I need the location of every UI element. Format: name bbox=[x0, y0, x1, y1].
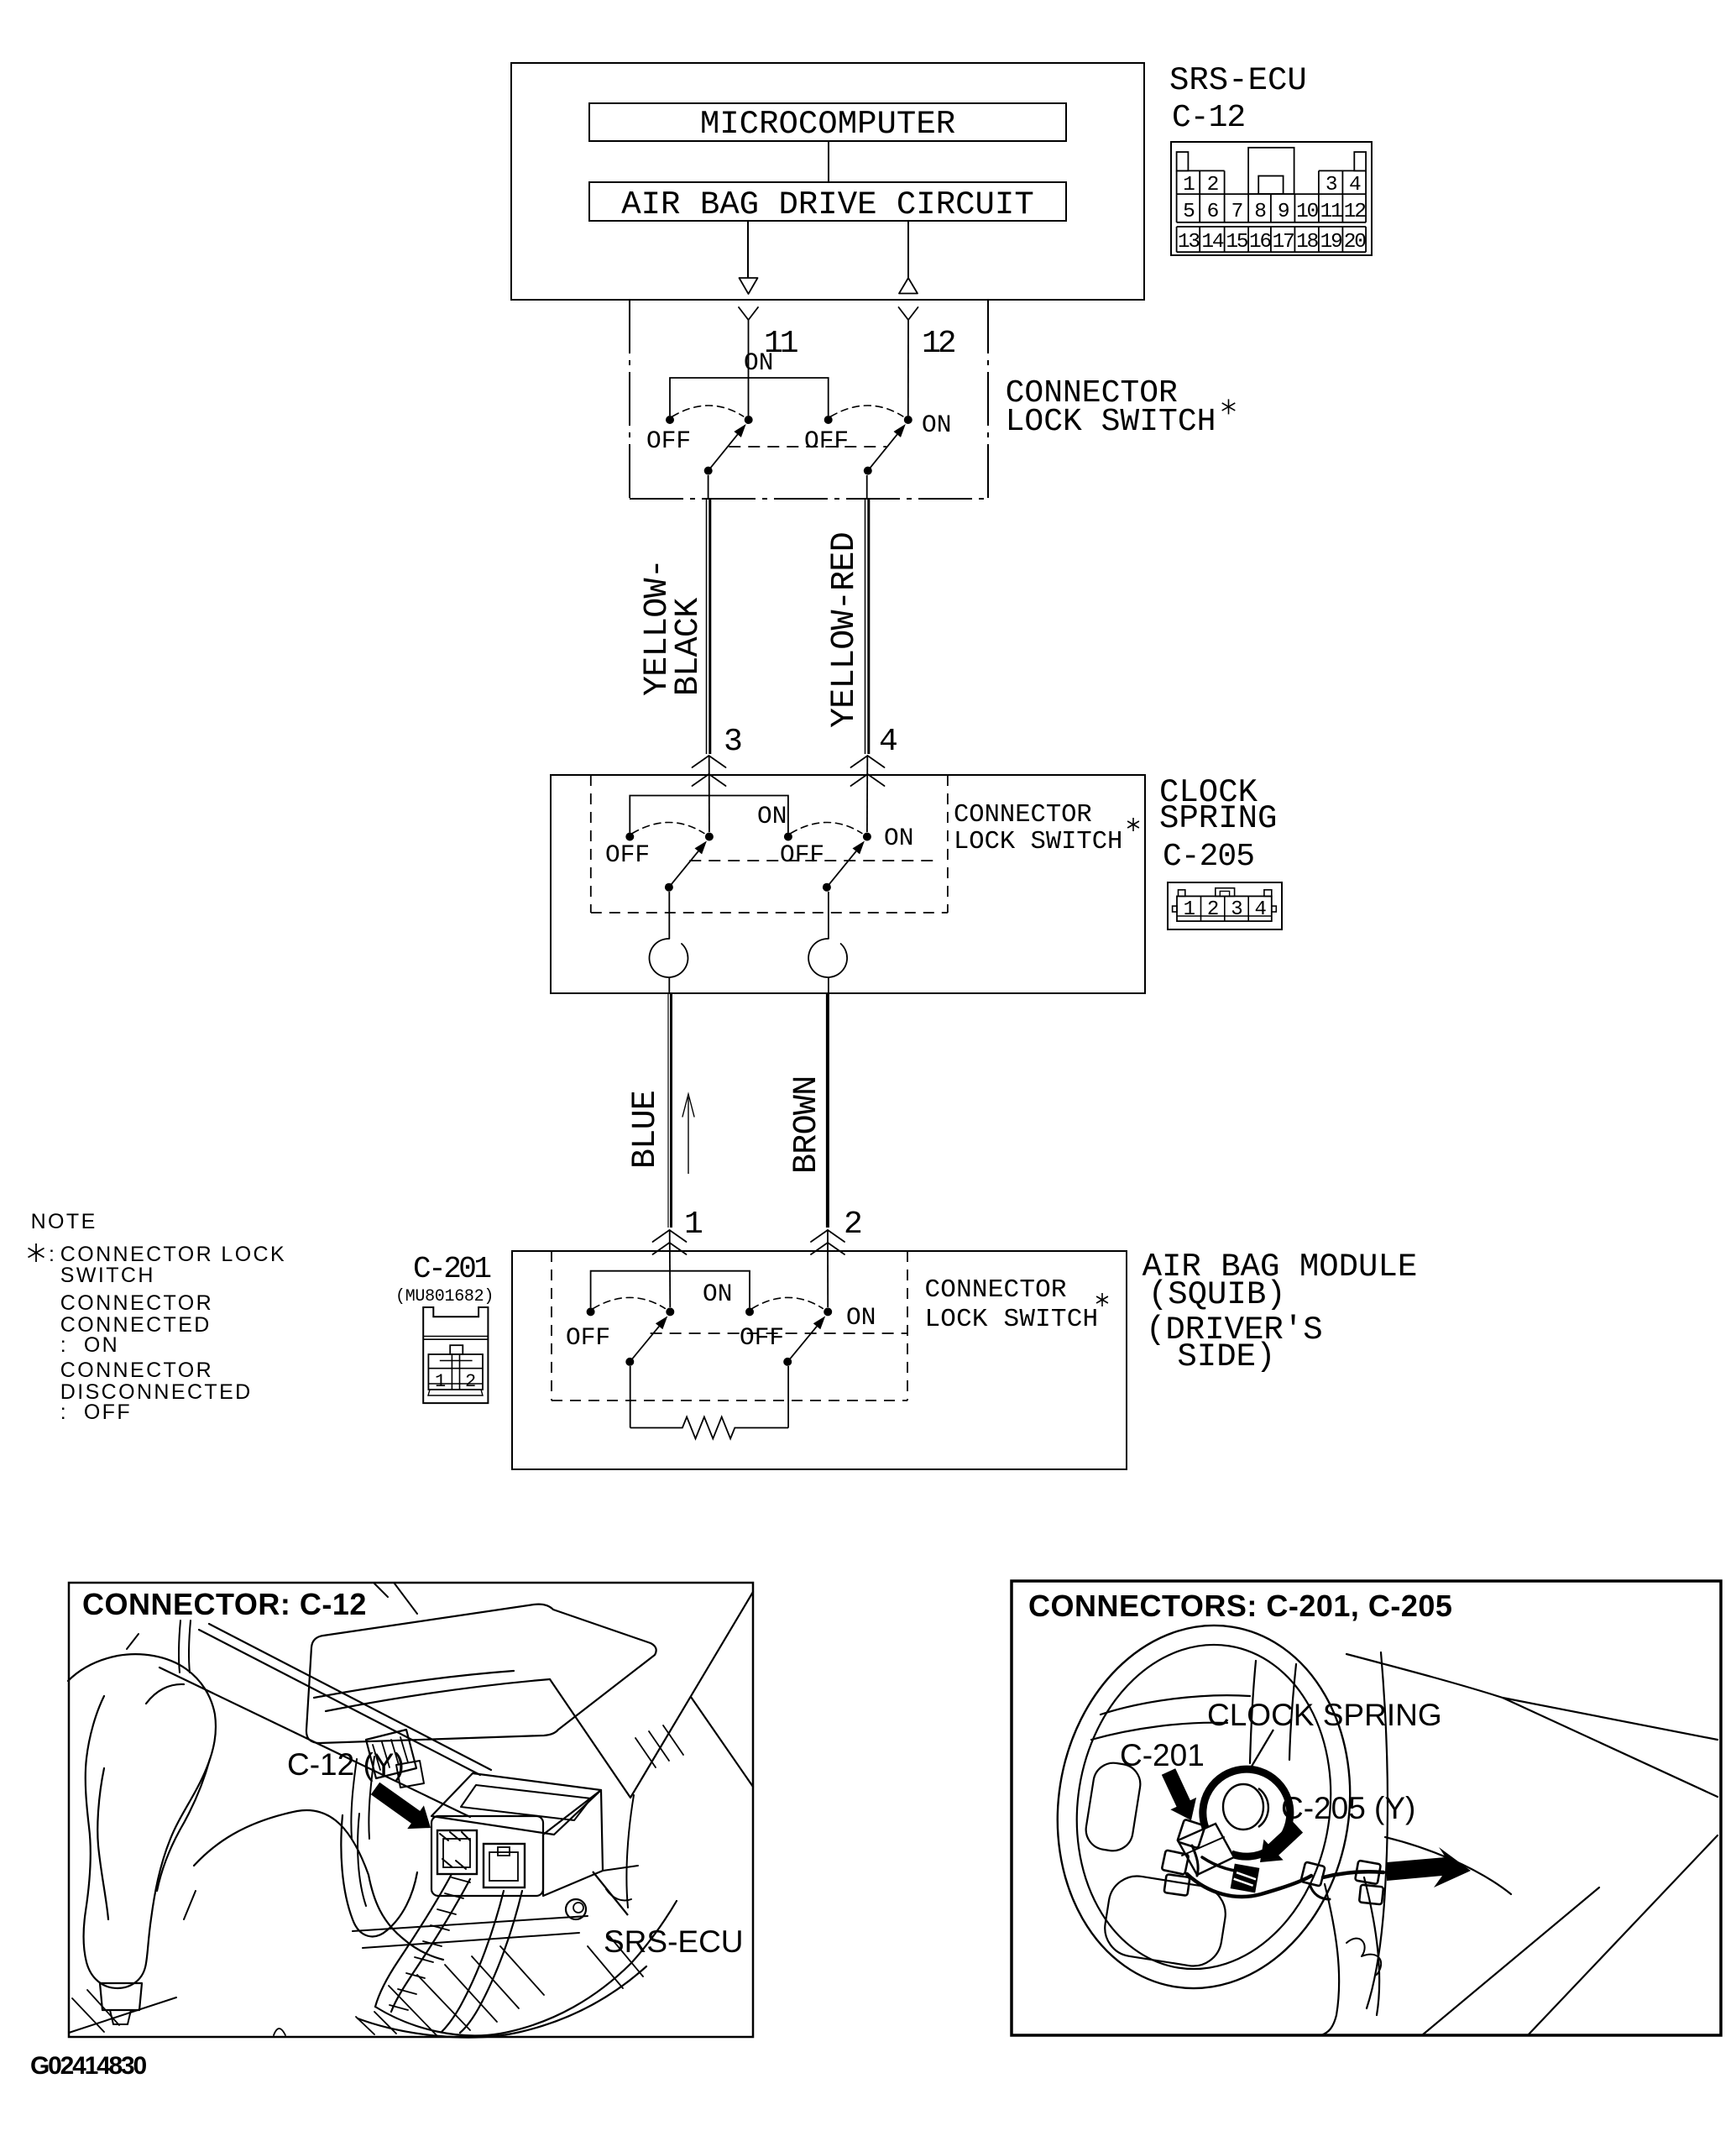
svg-text:CONNECTOR LOCK: CONNECTOR LOCK bbox=[60, 1243, 286, 1266]
svg-text:CONNECTOR: C-12: CONNECTOR: C-12 bbox=[82, 1587, 367, 1621]
svg-text:9: 9 bbox=[1278, 201, 1289, 223]
svg-text:CONNECTOR: CONNECTOR bbox=[60, 1291, 213, 1315]
svg-text:: OFF: : OFF bbox=[60, 1400, 132, 1424]
svg-text:11: 11 bbox=[1320, 201, 1343, 223]
svg-text:(SQUIB): (SQUIB) bbox=[1148, 1276, 1286, 1313]
svg-text:CONNECTORS: C-201, C-205: CONNECTORS: C-201, C-205 bbox=[1028, 1589, 1452, 1623]
svg-text:13: 13 bbox=[1178, 231, 1200, 254]
svg-text:OFF: OFF bbox=[646, 427, 691, 455]
svg-text:8: 8 bbox=[1254, 201, 1266, 223]
svg-text:6: 6 bbox=[1207, 201, 1219, 223]
svg-text:: ON: : ON bbox=[60, 1333, 119, 1357]
svg-text:5: 5 bbox=[1183, 201, 1195, 223]
svg-text:BROWN: BROWN bbox=[788, 1076, 826, 1174]
svg-text:OFF: OFF bbox=[804, 427, 849, 455]
svg-text:12: 12 bbox=[922, 326, 955, 362]
svg-text:2: 2 bbox=[1207, 898, 1218, 921]
svg-text:ON: ON bbox=[744, 348, 773, 377]
svg-text:OFF: OFF bbox=[780, 840, 824, 869]
svg-text:OFF: OFF bbox=[740, 1323, 784, 1352]
svg-text:LOCK SWITCH: LOCK SWITCH bbox=[1006, 404, 1216, 440]
svg-text:C-201: C-201 bbox=[1120, 1738, 1205, 1772]
svg-text:12: 12 bbox=[1344, 201, 1366, 223]
svg-text:ON: ON bbox=[846, 1303, 876, 1332]
svg-text:BLACK: BLACK bbox=[670, 598, 708, 696]
svg-text:17: 17 bbox=[1273, 231, 1294, 254]
svg-text:15: 15 bbox=[1226, 231, 1248, 254]
svg-text:ON: ON bbox=[922, 411, 951, 439]
svg-text:C-12: C-12 bbox=[1172, 100, 1245, 136]
svg-text:1: 1 bbox=[684, 1207, 703, 1243]
svg-text:CONNECTOR: CONNECTOR bbox=[60, 1359, 213, 1382]
svg-text:YELLOW-RED: YELLOW-RED bbox=[826, 532, 864, 728]
svg-text:ON: ON bbox=[757, 802, 787, 830]
svg-text::: : bbox=[49, 1243, 56, 1266]
svg-text:3: 3 bbox=[724, 724, 743, 760]
svg-text:18: 18 bbox=[1296, 231, 1319, 254]
svg-text:7: 7 bbox=[1231, 201, 1242, 223]
svg-text:(MU801682): (MU801682) bbox=[395, 1287, 494, 1306]
svg-text:G02414830: G02414830 bbox=[30, 2052, 147, 2080]
svg-text:CONNECTOR: CONNECTOR bbox=[954, 801, 1092, 830]
svg-text:19: 19 bbox=[1320, 231, 1342, 254]
svg-text:NOTE: NOTE bbox=[31, 1210, 97, 1233]
svg-text:SIDE): SIDE) bbox=[1158, 1338, 1275, 1375]
svg-text:ON: ON bbox=[703, 1280, 732, 1308]
svg-text:4: 4 bbox=[1349, 174, 1361, 196]
svg-text:SWITCH: SWITCH bbox=[60, 1264, 155, 1287]
svg-text:OFF: OFF bbox=[566, 1323, 610, 1352]
svg-text:16: 16 bbox=[1249, 231, 1272, 254]
svg-text:LOCK SWITCH: LOCK SWITCH bbox=[925, 1305, 1099, 1334]
svg-text:CLOCK SPRING: CLOCK SPRING bbox=[1207, 1698, 1442, 1732]
svg-text:AIR BAG DRIVE CIRCUIT: AIR BAG DRIVE CIRCUIT bbox=[621, 186, 1033, 223]
svg-text:C-205: C-205 bbox=[1163, 839, 1254, 875]
svg-text:1: 1 bbox=[1184, 898, 1195, 921]
svg-text:14: 14 bbox=[1201, 231, 1224, 254]
svg-text:1: 1 bbox=[435, 1371, 446, 1392]
svg-text:CONNECTOR: CONNECTOR bbox=[925, 1275, 1067, 1305]
svg-text:C-12 (Y): C-12 (Y) bbox=[287, 1747, 405, 1782]
svg-text:SPRING: SPRING bbox=[1159, 800, 1277, 837]
svg-text:2: 2 bbox=[844, 1207, 863, 1243]
svg-text:SRS-ECU: SRS-ECU bbox=[1169, 62, 1307, 99]
svg-text:10: 10 bbox=[1296, 201, 1319, 223]
svg-text:C-201: C-201 bbox=[413, 1252, 490, 1286]
svg-text:4: 4 bbox=[1254, 898, 1266, 921]
svg-text:3: 3 bbox=[1231, 898, 1242, 921]
svg-text:OFF: OFF bbox=[605, 840, 650, 869]
svg-text:1: 1 bbox=[1183, 174, 1195, 196]
svg-text:3: 3 bbox=[1326, 174, 1337, 196]
svg-text:LOCK SWITCH: LOCK SWITCH bbox=[954, 828, 1122, 856]
svg-text:C-205 (Y): C-205 (Y) bbox=[1281, 1791, 1415, 1825]
svg-text:2: 2 bbox=[465, 1371, 475, 1392]
svg-text:20: 20 bbox=[1344, 231, 1367, 254]
svg-text:4: 4 bbox=[879, 724, 898, 760]
svg-text:2: 2 bbox=[1207, 174, 1218, 196]
svg-text:ON: ON bbox=[884, 824, 913, 852]
svg-text:MICROCOMPUTER: MICROCOMPUTER bbox=[700, 106, 955, 143]
svg-text:BLUE: BLUE bbox=[627, 1091, 665, 1169]
